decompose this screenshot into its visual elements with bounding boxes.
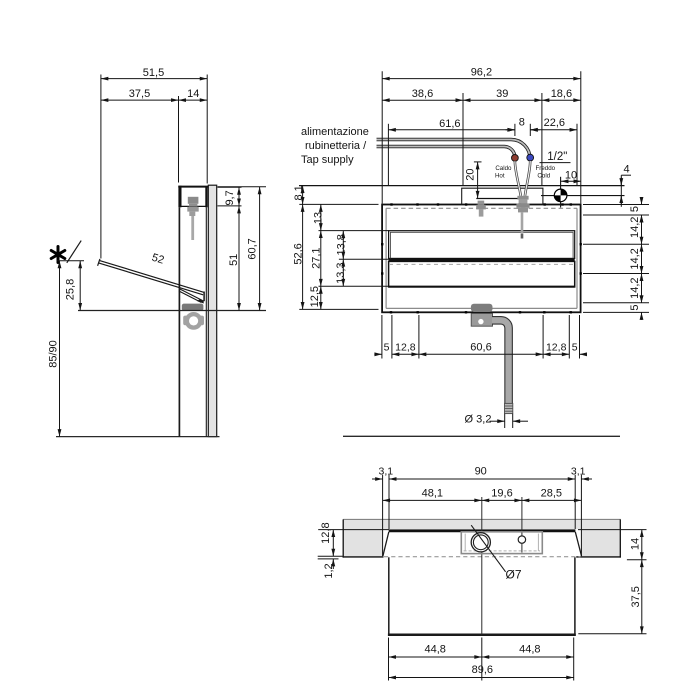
svg-text:96,2: 96,2 (471, 66, 492, 78)
svg-text:5: 5 (384, 341, 390, 353)
svg-text:12,5: 12,5 (309, 286, 321, 307)
svg-text:48,1: 48,1 (422, 488, 443, 500)
svg-text:Hot: Hot (495, 173, 505, 180)
svg-text:44,8: 44,8 (519, 644, 540, 656)
svg-text:13: 13 (313, 212, 325, 224)
svg-text:Ø 3,2: Ø 3,2 (465, 413, 492, 425)
svg-text:Tap supply: Tap supply (301, 154, 354, 166)
svg-text:13,8: 13,8 (336, 234, 348, 255)
svg-text:4: 4 (623, 163, 629, 175)
svg-text:60,7: 60,7 (246, 238, 258, 259)
svg-text:1/2": 1/2" (547, 151, 567, 163)
svg-text:38,6: 38,6 (412, 88, 433, 100)
svg-text:37,5: 37,5 (129, 88, 150, 100)
svg-text:12,8: 12,8 (395, 341, 416, 353)
svg-text:12,8: 12,8 (546, 341, 567, 353)
svg-text:rubinetteria /: rubinetteria / (305, 140, 367, 152)
svg-text:Caldo: Caldo (495, 165, 512, 172)
svg-text:5: 5 (572, 341, 578, 353)
svg-text:18,6: 18,6 (551, 88, 572, 100)
svg-text:28,5: 28,5 (541, 488, 562, 500)
svg-text:14: 14 (187, 88, 199, 100)
svg-text:9,7: 9,7 (224, 190, 236, 205)
svg-text:60,6: 60,6 (470, 342, 491, 354)
svg-text:3,1: 3,1 (378, 465, 393, 477)
svg-text:89,6: 89,6 (472, 664, 493, 676)
svg-text:14,2: 14,2 (629, 248, 641, 269)
svg-text:Freddo: Freddo (535, 165, 555, 172)
svg-text:5: 5 (629, 206, 641, 212)
svg-text:alimentazione: alimentazione (301, 126, 369, 138)
svg-text:39: 39 (496, 88, 508, 100)
svg-text:13,3: 13,3 (335, 262, 347, 283)
svg-text:Cold: Cold (537, 173, 550, 180)
svg-text:20: 20 (465, 168, 477, 180)
svg-text:25,8: 25,8 (65, 279, 77, 300)
svg-text:37,5: 37,5 (630, 586, 642, 607)
svg-text:3,1: 3,1 (571, 465, 586, 477)
svg-text:1,2: 1,2 (323, 563, 335, 578)
svg-text:51,5: 51,5 (143, 67, 164, 79)
svg-text:90: 90 (475, 466, 487, 478)
svg-text:8,1: 8,1 (293, 185, 305, 200)
svg-text:52,6: 52,6 (292, 243, 304, 264)
svg-text:85/90: 85/90 (47, 340, 59, 368)
svg-text:10: 10 (565, 169, 577, 181)
svg-text:14: 14 (629, 538, 641, 550)
svg-text:14,2: 14,2 (629, 277, 641, 298)
svg-text:27,1: 27,1 (310, 247, 322, 268)
svg-text:5: 5 (629, 305, 641, 311)
svg-text:51: 51 (228, 254, 240, 266)
svg-text:14,2: 14,2 (629, 217, 641, 238)
svg-text:8: 8 (519, 116, 525, 128)
svg-text:44,8: 44,8 (424, 644, 445, 656)
svg-text:61,6: 61,6 (439, 118, 460, 130)
svg-text:19,6: 19,6 (491, 488, 512, 500)
svg-text:22,6: 22,6 (544, 117, 565, 129)
svg-text:12,8: 12,8 (320, 522, 332, 543)
svg-text:Ø7: Ø7 (505, 568, 521, 582)
